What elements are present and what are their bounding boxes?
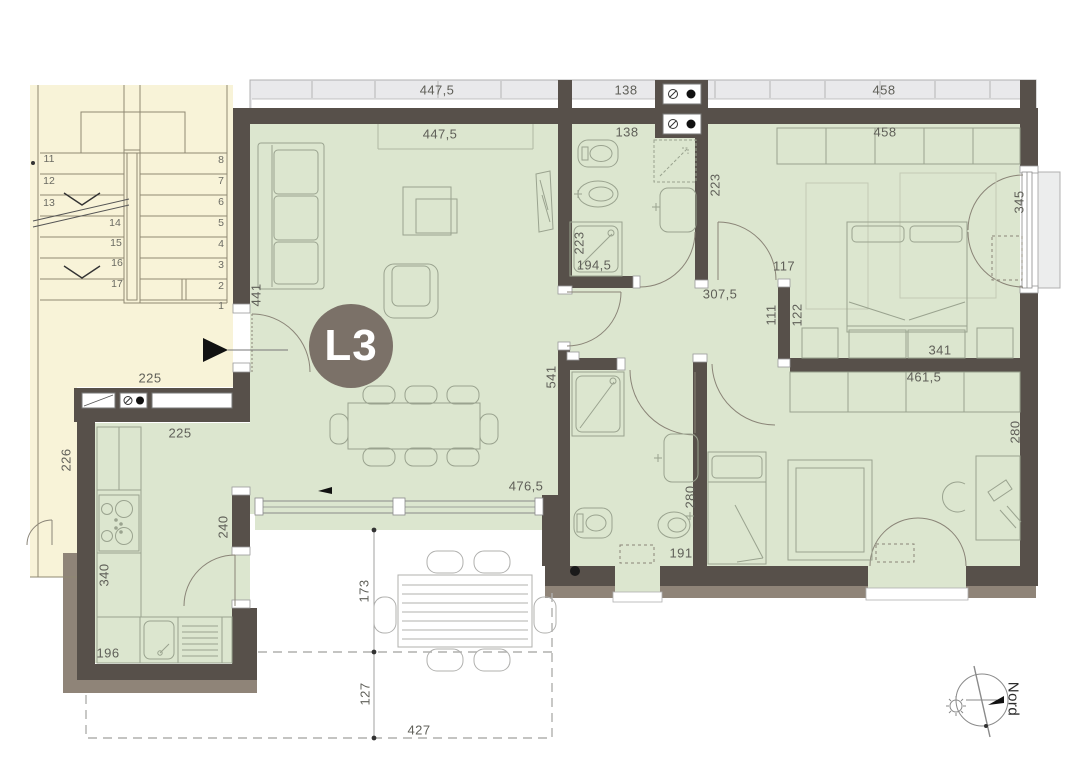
column-dot [570,566,580,576]
outdoor-table [398,575,532,647]
north-compass-icon [946,666,1008,737]
master-balcony [1038,172,1060,288]
outdoor-chair [427,551,463,573]
sun-icon [946,696,966,716]
outdoor-chair [374,597,396,633]
outdoor-chair [474,551,510,573]
balcony-strip [250,80,1036,110]
floor-plan: L3 Nord 447,5138458447,5138458441223194,… [0,0,1076,780]
floor-plan-drawing [0,0,1076,780]
